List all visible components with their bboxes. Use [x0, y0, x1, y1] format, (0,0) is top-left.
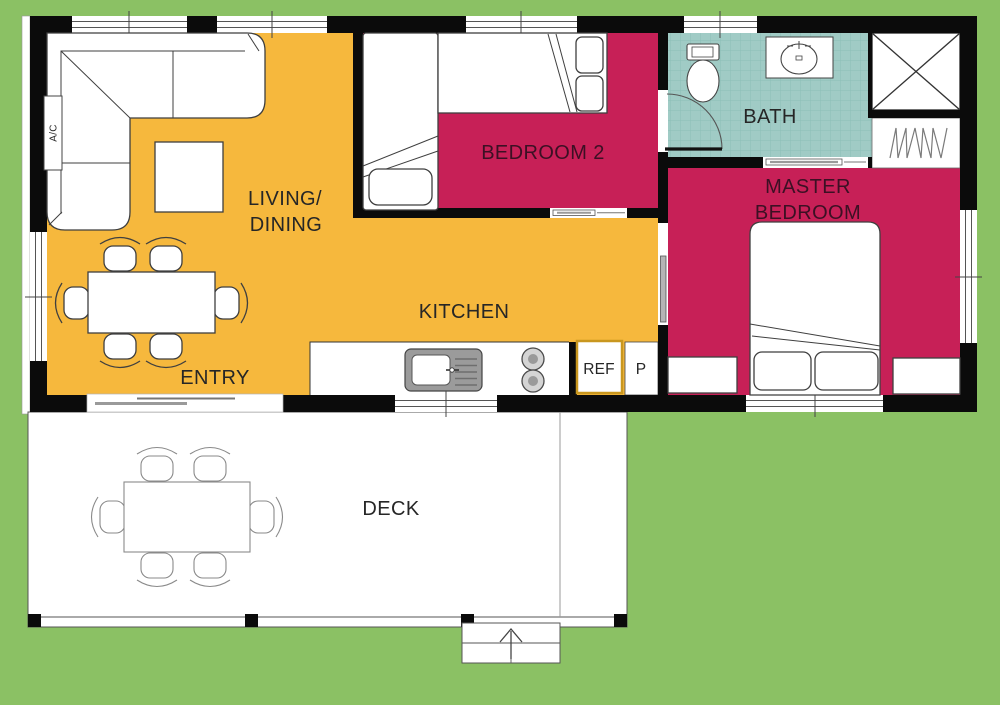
bath-master-sliding-door — [763, 157, 868, 168]
entry-sliding-door — [87, 394, 283, 412]
coffee-table — [155, 142, 223, 212]
deck-steps — [462, 623, 560, 663]
toilet-icon — [687, 44, 719, 102]
kitchen-label: KITCHEN — [419, 301, 510, 323]
refrigerator-label: REF — [583, 361, 615, 378]
bedside-table-left — [668, 357, 737, 393]
floor-plan-svg: LIVING/ DINING KITCHEN ENTRY BEDROOM 2 B… — [0, 0, 1000, 705]
bath-label: BATH — [743, 106, 796, 128]
master-bed — [750, 222, 880, 395]
ac-label: A/C — [49, 124, 60, 142]
bedside-table-right — [893, 358, 960, 394]
bedroom2-sliding-door — [550, 208, 627, 218]
deck-table — [124, 482, 250, 552]
bedroom2-single-bed — [363, 33, 438, 210]
living-dining-label-line2: DINING — [250, 214, 322, 236]
deck-label: DECK — [362, 498, 419, 520]
bedroom2-double-bed — [438, 33, 607, 113]
living-dining-label-line1: LIVING/ — [248, 188, 322, 210]
vanity-sink-icon — [766, 37, 833, 78]
shower-box-icon — [872, 33, 960, 110]
left-eave-strip — [22, 16, 30, 414]
floor-plan-canvas: LIVING/ DINING KITCHEN ENTRY BEDROOM 2 B… — [0, 0, 1000, 705]
master-bedroom-sliding-door — [658, 223, 668, 325]
kitchen-sink-icon — [405, 349, 482, 391]
master-bedroom-label-line1: MASTER — [765, 176, 851, 198]
master-bedroom-label-line2: BEDROOM — [755, 202, 861, 224]
dining-table — [88, 272, 215, 333]
deck-area — [28, 412, 627, 663]
entry-label: ENTRY — [180, 367, 249, 389]
bedroom2-label: BEDROOM 2 — [481, 142, 605, 164]
wardrobe-rail-icon — [872, 118, 960, 168]
pantry-label: P — [636, 361, 647, 378]
